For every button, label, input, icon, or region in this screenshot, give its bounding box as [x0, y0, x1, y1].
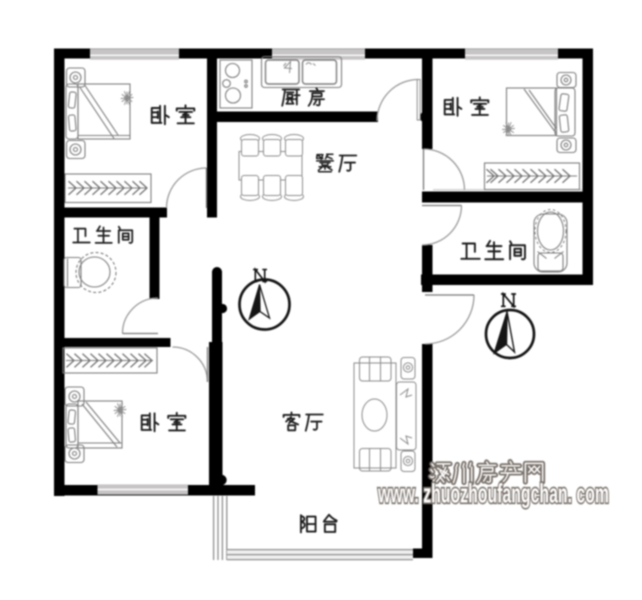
svg-text:www. zhuozhoufangchan. com: www. zhuozhoufangchan. com	[377, 479, 609, 509]
